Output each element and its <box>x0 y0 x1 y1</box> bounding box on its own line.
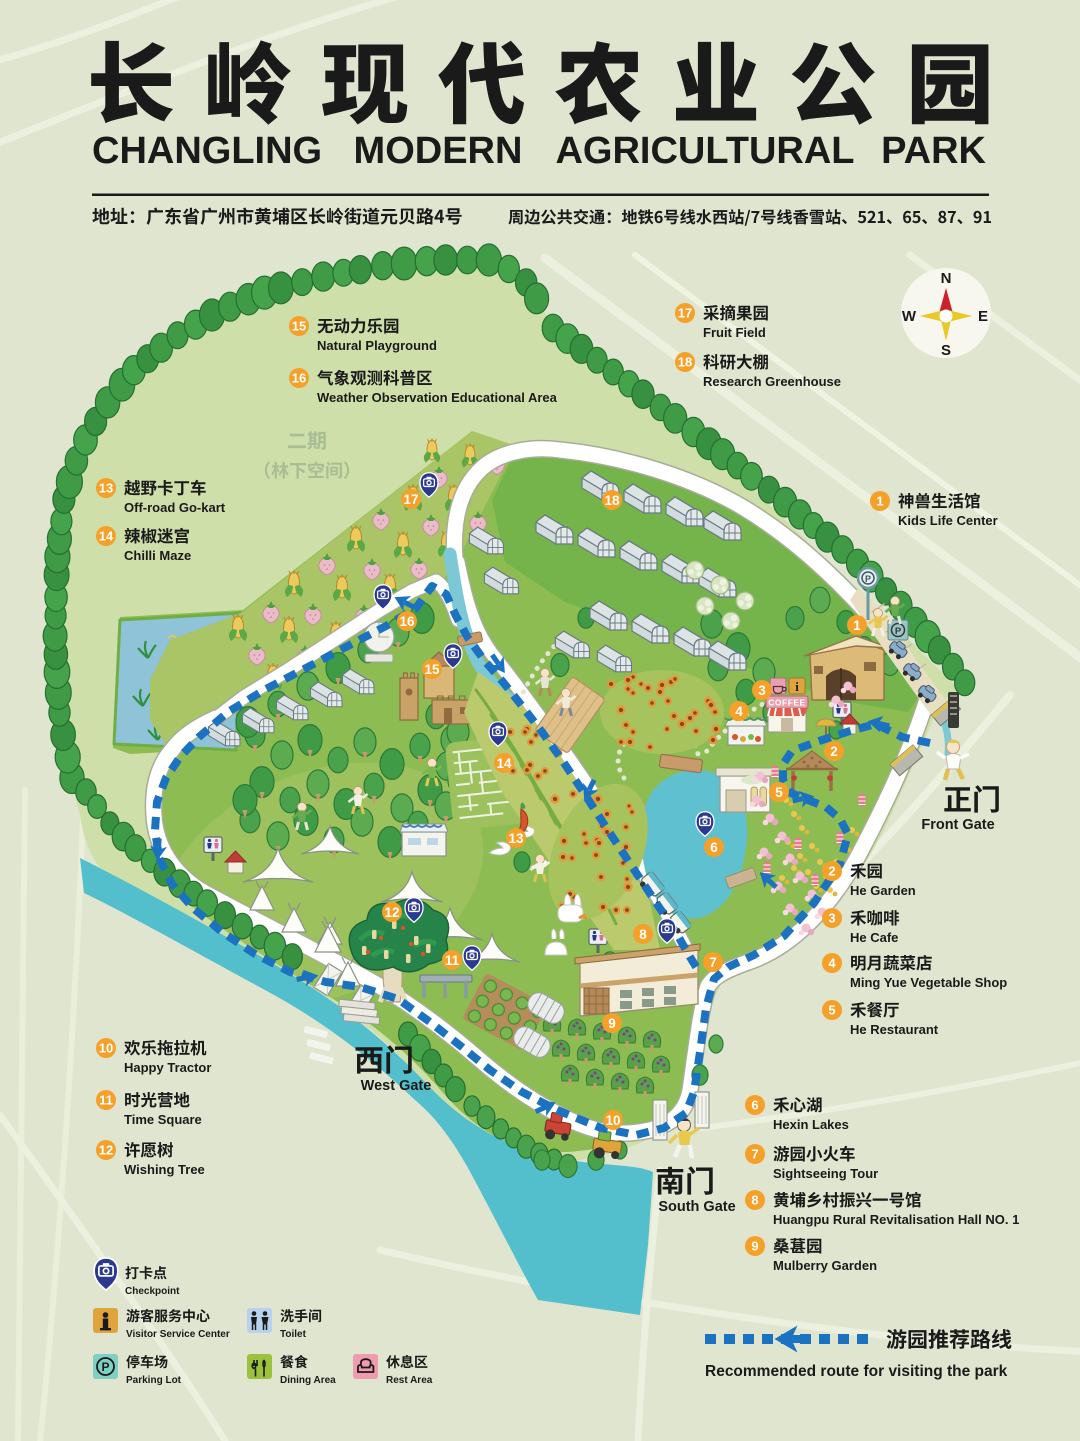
svg-text:13: 13 <box>508 831 524 846</box>
svg-text:10: 10 <box>605 1113 620 1128</box>
svg-text:COFFEE: COFFEE <box>768 698 805 708</box>
svg-text:9: 9 <box>751 1239 758 1254</box>
svg-text:4: 4 <box>828 956 836 971</box>
svg-text:He Cafe: He Cafe <box>850 930 898 945</box>
svg-text:P: P <box>101 1360 109 1374</box>
svg-text:5: 5 <box>828 1003 835 1018</box>
svg-text:Time Square: Time Square <box>124 1112 202 1127</box>
svg-text:Wishing Tree: Wishing Tree <box>124 1162 205 1177</box>
svg-text:6: 6 <box>751 1098 758 1113</box>
svg-text:10: 10 <box>99 1041 113 1056</box>
svg-text:14: 14 <box>496 756 512 771</box>
svg-text:i: i <box>795 679 799 694</box>
svg-text:11: 11 <box>99 1093 113 1108</box>
svg-text:CHANGLING: CHANGLING <box>92 130 322 172</box>
svg-text:Dining Area: Dining Area <box>280 1375 336 1386</box>
svg-text:1: 1 <box>853 618 861 633</box>
svg-text:8: 8 <box>751 1193 758 1208</box>
svg-text:PARK: PARK <box>881 130 986 172</box>
svg-text:Chilli Maze: Chilli Maze <box>124 548 191 563</box>
svg-text:W: W <box>902 308 917 325</box>
svg-text:9: 9 <box>608 1016 616 1031</box>
svg-text:Parking Lot: Parking Lot <box>126 1375 182 1386</box>
svg-text:Sightseeing Tour: Sightseeing Tour <box>773 1166 878 1181</box>
svg-text:4: 4 <box>735 704 743 719</box>
svg-text:6: 6 <box>710 840 718 855</box>
svg-text:Kids Life Center: Kids Life Center <box>898 513 998 528</box>
svg-text:1: 1 <box>876 494 883 509</box>
svg-text:Recommended route for visiting: Recommended route for visiting the park <box>705 1363 1008 1380</box>
svg-text:12: 12 <box>99 1143 113 1158</box>
svg-text:He Restaurant: He Restaurant <box>850 1022 939 1037</box>
svg-text:12: 12 <box>384 905 399 920</box>
svg-text:Research Greenhouse: Research Greenhouse <box>703 374 841 389</box>
svg-text:Ming Yue Vegetable Shop: Ming Yue Vegetable Shop <box>850 975 1007 990</box>
svg-text:7: 7 <box>751 1147 758 1162</box>
svg-text:18: 18 <box>678 355 692 370</box>
svg-text:P: P <box>865 574 871 584</box>
svg-text:11: 11 <box>445 953 460 968</box>
svg-text:2: 2 <box>830 744 838 759</box>
svg-text:Off-road Go-kart: Off-road Go-kart <box>124 500 226 515</box>
svg-text:Visitor Service Center: Visitor Service Center <box>126 1329 230 1340</box>
svg-text:Toilet: Toilet <box>280 1329 307 1340</box>
svg-text:E: E <box>978 308 988 325</box>
svg-text:Checkpoint: Checkpoint <box>125 1286 180 1297</box>
svg-text:3: 3 <box>758 683 766 698</box>
svg-text:13: 13 <box>99 481 113 496</box>
svg-text:Happy Tractor: Happy Tractor <box>124 1060 211 1075</box>
svg-text:Huangpu Rural Revitalisation H: Huangpu Rural Revitalisation Hall NO. 1 <box>773 1212 1019 1227</box>
svg-text:8: 8 <box>639 927 647 942</box>
svg-text:MODERN: MODERN <box>354 130 523 172</box>
svg-text:2: 2 <box>828 864 835 879</box>
svg-text:S: S <box>941 342 951 359</box>
svg-text:Rest Area: Rest Area <box>386 1375 433 1386</box>
svg-text:Mulberry Garden: Mulberry Garden <box>773 1258 877 1273</box>
svg-text:He Garden: He Garden <box>850 883 916 898</box>
svg-text:18: 18 <box>604 493 620 508</box>
svg-text:Fruit Field: Fruit Field <box>703 325 766 340</box>
svg-text:17: 17 <box>678 306 692 321</box>
svg-text:Hexin Lakes: Hexin Lakes <box>773 1117 849 1132</box>
svg-text:17: 17 <box>403 492 418 507</box>
svg-text:14: 14 <box>99 529 114 544</box>
svg-text:Weather Observation Educationa: Weather Observation Educational Area <box>317 390 558 405</box>
svg-text:16: 16 <box>399 614 415 629</box>
svg-text:Front Gate: Front Gate <box>921 817 994 833</box>
svg-text:N: N <box>941 270 952 287</box>
svg-text:AGRICULTURAL: AGRICULTURAL <box>555 130 854 172</box>
svg-text:P: P <box>895 626 902 637</box>
svg-text:South Gate: South Gate <box>658 1199 735 1215</box>
svg-text:15: 15 <box>424 662 440 677</box>
svg-text:5: 5 <box>775 785 783 800</box>
svg-text:15: 15 <box>292 319 306 334</box>
svg-text:Natural Playground: Natural Playground <box>317 338 437 353</box>
svg-text:West Gate: West Gate <box>361 1078 432 1094</box>
svg-text:16: 16 <box>292 371 306 386</box>
svg-text:7: 7 <box>709 955 717 970</box>
svg-text:3: 3 <box>828 911 835 926</box>
